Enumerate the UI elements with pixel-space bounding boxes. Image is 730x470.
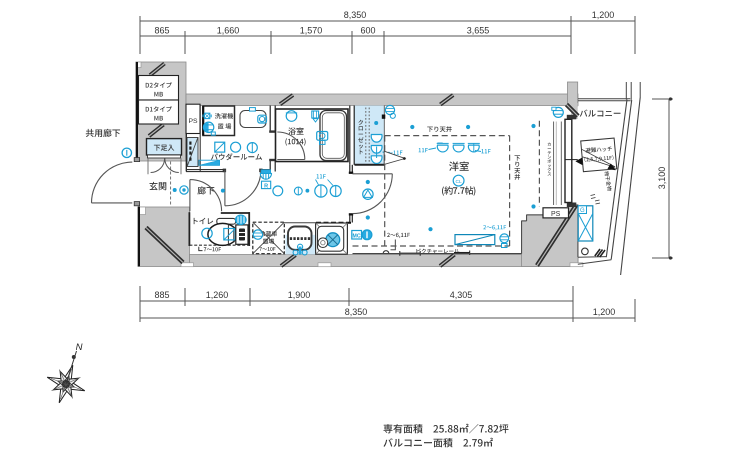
svg-text:MC: MC (353, 233, 361, 239)
svg-text:3,100: 3,100 (657, 167, 667, 190)
svg-text:PS: PS (188, 118, 198, 125)
svg-text:PS: PS (551, 211, 561, 218)
svg-text:1,260: 1,260 (206, 290, 229, 300)
svg-text:R: R (264, 183, 268, 189)
svg-text:600: 600 (360, 26, 375, 36)
svg-text:1,200: 1,200 (592, 10, 615, 20)
svg-text:1,570: 1,570 (300, 26, 323, 36)
svg-text:8,350: 8,350 (345, 307, 368, 317)
svg-text:1,900: 1,900 (288, 290, 311, 300)
svg-text:CL: CL (456, 179, 462, 185)
svg-text:1,660: 1,660 (217, 26, 240, 36)
svg-text:G: G (580, 208, 585, 214)
svg-text:3,655: 3,655 (467, 26, 490, 36)
svg-text:1,200: 1,200 (593, 307, 616, 317)
svg-text:4,305: 4,305 (450, 290, 473, 300)
svg-text:885: 885 (154, 290, 169, 300)
svg-text:N: N (76, 342, 83, 353)
svg-text:8,350: 8,350 (344, 10, 367, 20)
svg-text:865: 865 (154, 26, 169, 36)
